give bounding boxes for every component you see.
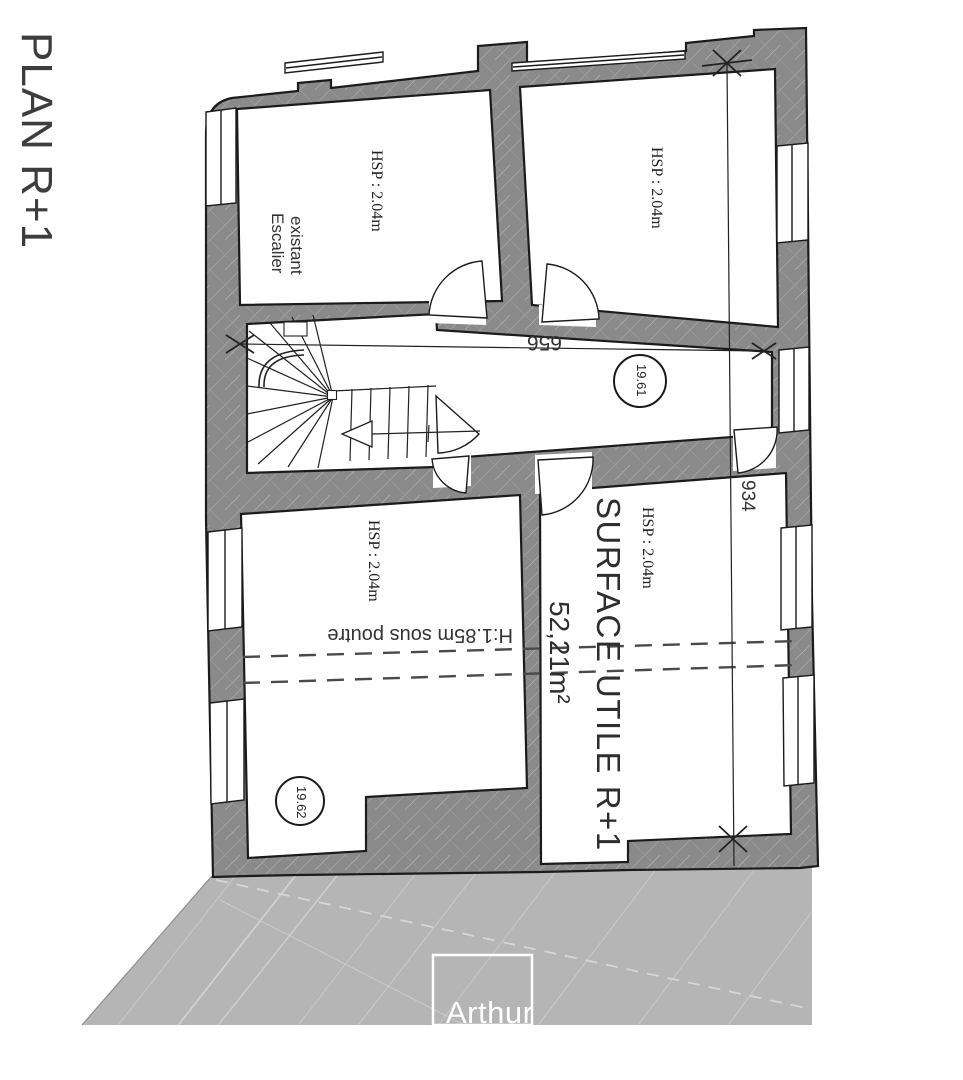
- plan-title: PLAN R+1: [12, 32, 61, 249]
- beam-note-label: H:1.85m sous poutre: [327, 624, 513, 646]
- stair-label-line2: existant: [287, 216, 306, 275]
- beam-line-lower: [243, 665, 798, 683]
- hsp-label-top-left-room: HSP : 2.04m: [368, 150, 385, 232]
- dim-value-corridor: 656: [527, 331, 562, 354]
- door-swing-bottom-right-room: [538, 457, 593, 515]
- surface-title-label: SURFACE UTILE R+1: [590, 497, 627, 852]
- surface-value-label: 52,21m²: [544, 601, 575, 704]
- window-left-3: [210, 699, 244, 804]
- roof-area: Arthur: [82, 860, 850, 1030]
- area-tag-value-corridor: 19.61: [634, 364, 649, 397]
- door-swing-top-right-room: [542, 264, 599, 322]
- hsp-label-top-right-room: HSP : 2.04m: [648, 147, 665, 229]
- arrow-head: [342, 421, 372, 447]
- stair-run-treads: [350, 385, 428, 461]
- arrow-tick: [428, 425, 429, 442]
- door-swing-top-left-room: [429, 261, 487, 318]
- window-left-2: [208, 528, 242, 631]
- hsp-label-bottom-left-room: HSP : 2.04m: [365, 520, 382, 602]
- beam-dashed-lines: [243, 641, 798, 683]
- stair-label-line1: Escalier: [268, 213, 287, 274]
- floor-plan-canvas: PLAN R+1 Arthur: [0, 0, 963, 1080]
- door-swing-staircase: [436, 396, 479, 453]
- stair-winder-treads: [247, 315, 333, 468]
- area-tag-value-bottom-left: 19.62: [294, 786, 309, 819]
- stair-run-edge: [333, 386, 436, 391]
- stair-newel: [328, 391, 337, 400]
- window-right-3: [781, 525, 812, 630]
- hsp-label-bottom-right-room: HSP : 2.04m: [639, 507, 656, 589]
- window-right-1: [777, 143, 808, 243]
- dim-value-depth: 934: [737, 480, 758, 512]
- floor-plan-page: PLAN R+1 Arthur: [0, 0, 963, 1080]
- watermark-text: Arthur: [446, 995, 533, 1030]
- window-right-2: [779, 347, 809, 433]
- window-right-4: [783, 675, 814, 786]
- window-left-1: [206, 108, 236, 206]
- window-top-1: [285, 52, 383, 73]
- stair-post: [284, 322, 307, 336]
- beam-line-upper: [243, 641, 798, 657]
